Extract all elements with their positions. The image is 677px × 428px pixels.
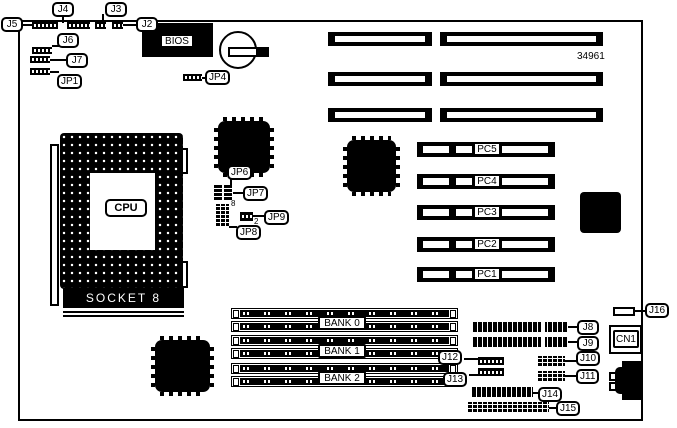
keyboard-connector-tab bbox=[609, 382, 617, 391]
j4-header bbox=[67, 22, 90, 29]
qfp-chip bbox=[155, 340, 210, 392]
pci-slot-label: PC5 bbox=[473, 142, 501, 156]
j11-header bbox=[538, 371, 565, 381]
j6-label: J6 bbox=[57, 33, 79, 48]
callout-line bbox=[233, 192, 243, 194]
jp1-header bbox=[30, 68, 50, 75]
j5-label: J5 bbox=[1, 17, 23, 32]
pci-slot-label: PC1 bbox=[473, 267, 501, 281]
isa-slot bbox=[440, 32, 603, 46]
j12-label: J12 bbox=[438, 350, 462, 365]
j2-label: J2 bbox=[136, 17, 158, 32]
j16-header bbox=[613, 307, 635, 316]
j13-header bbox=[478, 368, 504, 376]
j12-header bbox=[478, 357, 504, 365]
pci-slot-pc2: PC2 bbox=[417, 237, 555, 252]
callout-line bbox=[469, 374, 478, 376]
isa-slot bbox=[440, 108, 603, 122]
jp8-block bbox=[216, 204, 229, 226]
callout-line bbox=[230, 179, 232, 186]
j9-header bbox=[473, 337, 568, 347]
j15-header bbox=[468, 402, 549, 412]
jp6-jumper bbox=[214, 185, 222, 200]
callout-line bbox=[102, 14, 104, 23]
isa-slot bbox=[328, 72, 432, 86]
pci-slot-pc3: PC3 bbox=[417, 205, 555, 220]
jp9-label: JP9 bbox=[264, 210, 289, 225]
cpu-label: CPU bbox=[105, 199, 147, 217]
keyboard-connector bbox=[622, 361, 643, 400]
keyboard-connector-tab bbox=[609, 372, 617, 381]
j11-label: J11 bbox=[576, 369, 599, 384]
socket-underline bbox=[63, 315, 184, 317]
chipset-chip bbox=[580, 192, 621, 233]
j14-header bbox=[472, 387, 533, 397]
socket-tab bbox=[181, 261, 188, 288]
callout-line bbox=[50, 71, 59, 73]
callout-line bbox=[123, 24, 137, 26]
j8-header bbox=[473, 322, 568, 332]
part-number: 34961 bbox=[577, 51, 605, 62]
j5-header bbox=[32, 22, 58, 29]
jp1-label: JP1 bbox=[57, 74, 82, 89]
j4-label: J4 bbox=[52, 2, 74, 17]
isa-slot bbox=[440, 72, 603, 86]
j8-label: J8 bbox=[577, 320, 599, 335]
jp6-label: JP6 bbox=[227, 165, 252, 180]
pci-slot-pc1: PC1 bbox=[417, 267, 555, 282]
socket-tab bbox=[181, 148, 188, 174]
jp7-jumper bbox=[224, 185, 232, 200]
j15-label: J15 bbox=[556, 401, 580, 416]
pci-slot-label: PC4 bbox=[473, 174, 501, 188]
jp8-label: JP8 bbox=[236, 225, 261, 240]
bios-label: BIOS bbox=[160, 34, 194, 48]
pci-slot-label: PC2 bbox=[473, 237, 501, 251]
j7-label: J7 bbox=[66, 53, 88, 68]
jp9-jumper bbox=[240, 212, 253, 221]
j3-label: J3 bbox=[105, 2, 127, 17]
callout-line bbox=[50, 59, 67, 61]
pci-slot-pc5: PC5 bbox=[417, 142, 555, 157]
qfp-chip bbox=[347, 140, 396, 192]
motherboard-diagram: J5 J4 J3 J2 J6 J7 JP1 JP4 BIOS 34961 CPU… bbox=[0, 0, 677, 428]
jp4-header bbox=[183, 74, 202, 81]
jp8-pin-number: 8 bbox=[231, 200, 235, 208]
bank2-label: BANK 2 bbox=[318, 371, 366, 385]
bank0-label: BANK 0 bbox=[318, 316, 366, 330]
cn1-label: CN1 bbox=[613, 330, 639, 348]
j10-label: J10 bbox=[576, 351, 600, 366]
socket8-bar: SOCKET 8 bbox=[63, 288, 184, 308]
jp7-label: JP7 bbox=[243, 186, 268, 201]
j3-header bbox=[95, 22, 106, 29]
battery-clip bbox=[228, 47, 259, 57]
isa-slot bbox=[328, 32, 432, 46]
j10-header bbox=[538, 356, 565, 366]
j9-label: J9 bbox=[577, 336, 599, 351]
j13-label: J13 bbox=[443, 372, 467, 387]
isa-slot bbox=[328, 108, 432, 122]
jp4-label: JP4 bbox=[205, 70, 230, 85]
bank1-label: BANK 1 bbox=[318, 344, 366, 358]
callout-line bbox=[464, 358, 478, 360]
j7-header bbox=[30, 56, 50, 63]
jp9-pin-number: 2 bbox=[254, 218, 258, 226]
battery-clip-tip bbox=[256, 47, 269, 57]
j16-label: J16 bbox=[645, 303, 669, 318]
socket-underline bbox=[63, 311, 184, 313]
j6-header bbox=[32, 47, 52, 54]
pci-slot-label: PC3 bbox=[473, 205, 501, 219]
j14-label: J14 bbox=[538, 387, 562, 402]
socket-lever bbox=[50, 144, 59, 306]
pci-slot-pc4: PC4 bbox=[417, 174, 555, 189]
j2-header bbox=[112, 22, 123, 29]
